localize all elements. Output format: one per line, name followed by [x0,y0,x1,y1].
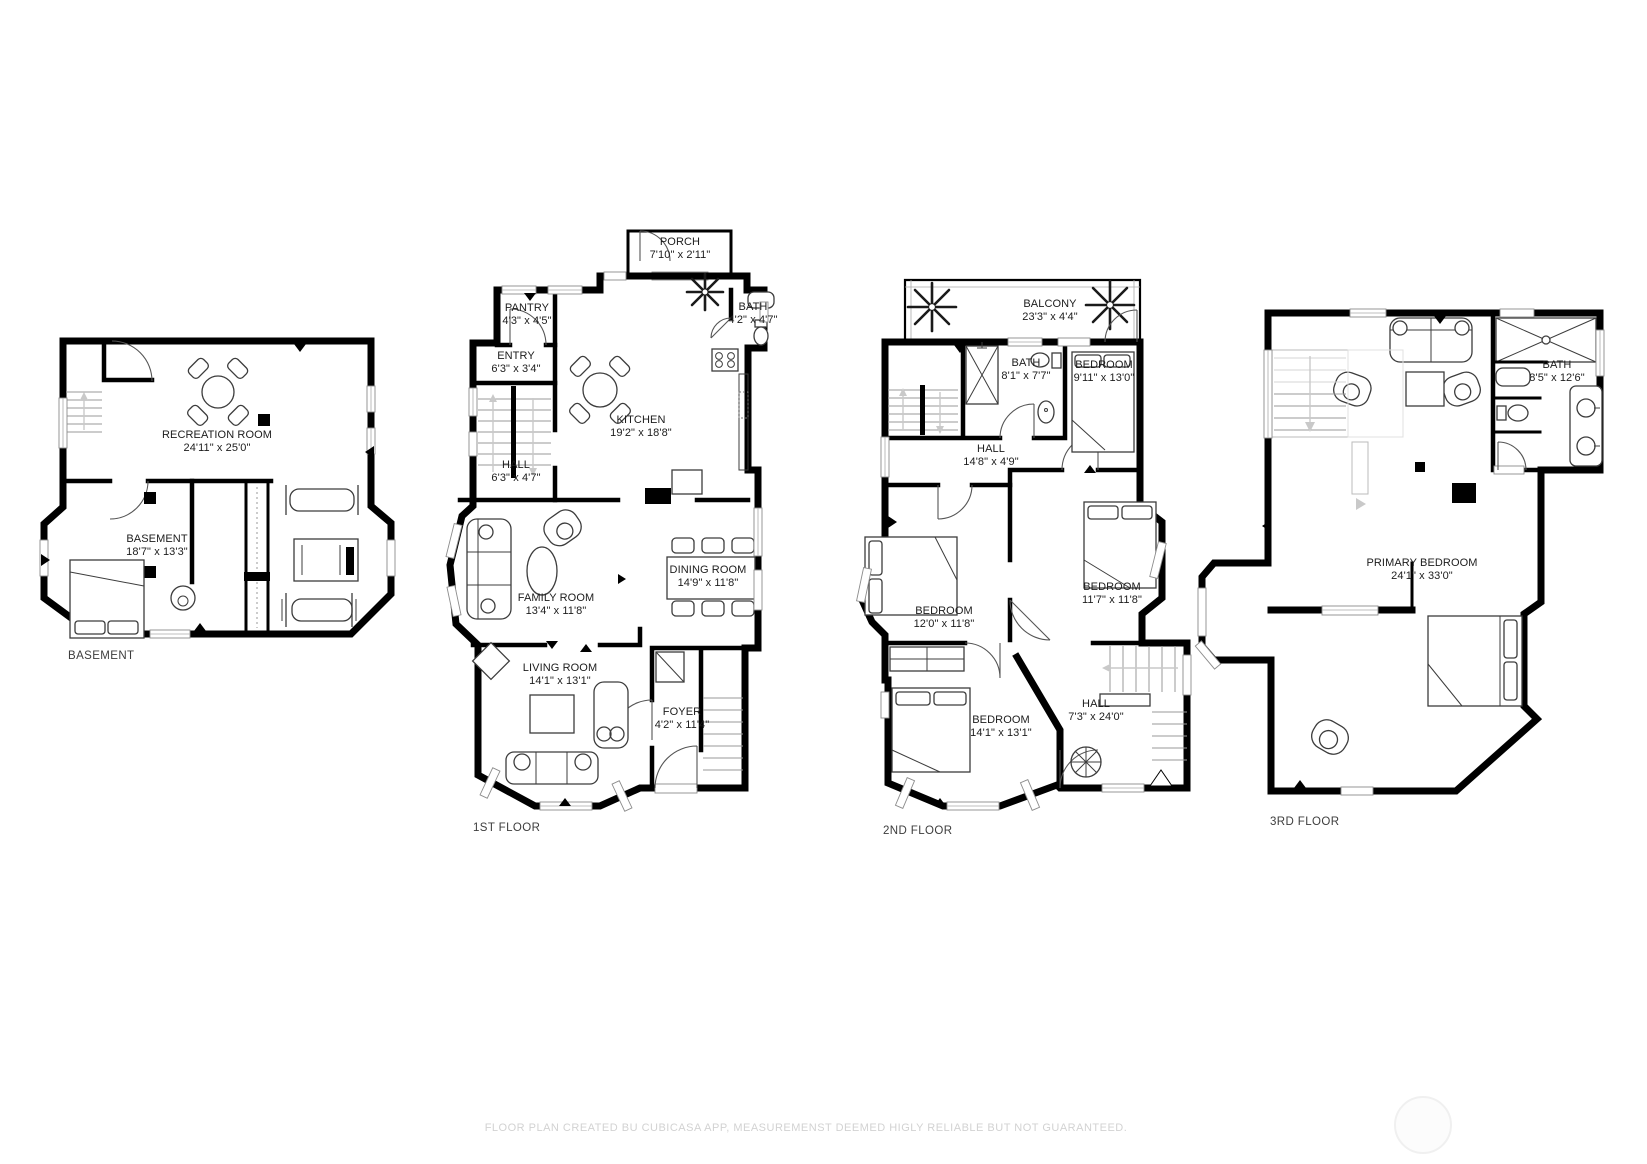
room-name-label: PRIMARY BEDROOM [1366,557,1477,570]
room-label-family-room: FAMILY ROOM 13'4" x 11'8" [518,592,594,617]
bedroom-12-bed [865,537,957,615]
primary-bed [1428,616,1522,706]
plant-icon [908,283,956,331]
room-label-hall-2f-lower: HALL 7'3" x 24'0" [1068,698,1123,723]
room-name-label: RECREATION ROOM [162,429,272,442]
room-label-hall-2f: HALL 14'8" x 4'9" [963,443,1018,468]
room-dims-label: 12'0" x 11'8" [914,618,975,631]
room-name-label: BALCONY [1022,298,1077,311]
room-dims-label: 4'3" x 4'5" [502,315,551,328]
room-label-hall-1f: HALL 6'3" x 4'7" [491,459,540,484]
floor-title-1st-floor: 1ST FLOOR [473,822,540,834]
plant-icon [1071,747,1101,777]
room-label-bedroom-117: BEDROOM 11'7" x 11'8" [1082,581,1142,606]
plant-icon [687,274,723,310]
floor-title-basement: BASEMENT [68,650,134,662]
basement-bed [70,560,144,638]
floorplan-canvas [0,0,1647,1164]
gym-equipment [282,485,358,627]
room-dims-label: 18'7" x 13'3" [126,546,188,559]
room-name-label: LIVING ROOM [523,662,597,675]
watermark-circle [1394,1096,1452,1154]
basement-chair [171,586,195,610]
room-label-bath-1f: BATH 4'2" x 4'7" [728,301,777,326]
room-label-bath-3f: BATH 8'5" x 12'6" [1529,359,1584,384]
room-label-primary-bedroom: PRIMARY BEDROOM 24'1" x 33'0" [1366,557,1477,582]
sitting-area-furniture [1330,318,1483,409]
room-name-label: ENTRY [491,350,540,363]
room-name-label: BEDROOM [914,605,975,618]
room-label-bedroom-120: BEDROOM 12'0" x 11'8" [914,605,975,630]
room-name-label: FAMILY ROOM [518,592,594,605]
room-name-label: BASEMENT [126,533,188,546]
recreation-table [186,357,250,427]
room-dims-label: 8'5" x 12'6" [1529,372,1584,385]
room-name-label: PORCH [650,236,711,249]
room-label-dining-room: DINING ROOM 14'9" x 11'8" [670,564,747,589]
room-dims-label: 6'3" x 3'4" [491,363,540,376]
room-dims-label: 24'1" x 33'0" [1366,570,1477,583]
room-label-entry: ENTRY 6'3" x 3'4" [491,350,540,375]
room-name-label: BATH [1529,359,1584,372]
bedroom-14-bed [892,688,970,772]
room-name-label: BATH [728,301,777,314]
footer-disclaimer: FLOOR PLAN CREATED BU CUBICASA APP, MEAS… [485,1122,1128,1134]
plant-icon [1086,281,1134,329]
room-label-porch: PORCH 7'10" x 2'11" [650,236,711,261]
room-label-foyer: FOYER 4'2" x 11'4" [655,706,710,731]
room-name-label: BEDROOM [1074,359,1135,372]
room-name-label: HALL [1068,698,1123,711]
third-floor-stairs [1272,350,1403,510]
room-dims-label: 14'1" x 13'1" [523,675,597,688]
room-name-label: BEDROOM [970,714,1032,727]
primary-bedroom-chair [1307,715,1353,759]
room-dims-label: 4'2" x 11'4" [655,719,710,732]
room-name-label: HALL [963,443,1018,456]
room-name-label: FOYER [655,706,710,719]
second-floor-stairs-up [888,385,958,435]
room-dims-label: 23'3" x 4'4" [1022,311,1077,324]
room-name-label: BATH [1001,357,1050,370]
room-dims-label: 8'1" x 7'7" [1001,370,1050,383]
room-dims-label: 9'11" x 13'0" [1074,372,1135,385]
room-dims-label: 7'3" x 24'0" [1068,711,1123,724]
room-dims-label: 19'2" x 18'8" [610,427,672,440]
room-label-living-room: LIVING ROOM 14'1" x 13'1" [523,662,597,687]
basement-plan [40,341,395,638]
room-label-bedroom-141: BEDROOM 14'1" x 13'1" [970,714,1032,739]
room-label-kitchen: KITCHEN 19'2" x 18'8" [610,414,672,439]
floor-title-3rd-floor: 3RD FLOOR [1270,816,1339,828]
room-name-label: BEDROOM [1082,581,1142,594]
first-floor-plan [446,231,774,811]
room-dims-label: 14'9" x 11'8" [670,577,747,590]
room-dims-label: 7'10" x 2'11" [650,249,711,262]
room-dims-label: 6'3" x 4'7" [491,472,540,485]
third-floor-bath [1493,313,1602,474]
room-name-label: DINING ROOM [670,564,747,577]
basement-stairs [66,392,102,432]
room-dims-label: 14'1" x 13'1" [970,727,1032,740]
room-dims-label: 4'2" x 4'7" [728,314,777,327]
room-label-basement: BASEMENT 18'7" x 13'3" [126,533,188,558]
floorplan-sheet: RECREATION ROOM 24'11" x 25'0" BASEMENT … [0,0,1647,1164]
room-dims-label: 24'11" x 25'0" [162,442,272,455]
room-name-label: HALL [491,459,540,472]
room-label-balcony: BALCONY 23'3" x 4'4" [1022,298,1077,323]
stove-icon [712,349,748,470]
room-dims-label: 14'8" x 4'9" [963,456,1018,469]
room-dims-label: 11'7" x 11'8" [1082,594,1142,607]
room-name-label: KITCHEN [610,414,672,427]
floor-title-2nd-floor: 2ND FLOOR [883,825,952,837]
room-name-label: PANTRY [502,302,551,315]
room-label-bath-2f: BATH 8'1" x 7'7" [1001,357,1050,382]
room-dims-label: 13'4" x 11'8" [518,605,594,618]
room-label-recreation-room: RECREATION ROOM 24'11" x 25'0" [162,429,272,454]
room-label-bedroom-911: BEDROOM 9'11" x 13'0" [1074,359,1135,384]
room-label-pantry: PANTRY 4'3" x 4'5" [502,302,551,327]
bedroom-11-bed [1084,502,1156,588]
